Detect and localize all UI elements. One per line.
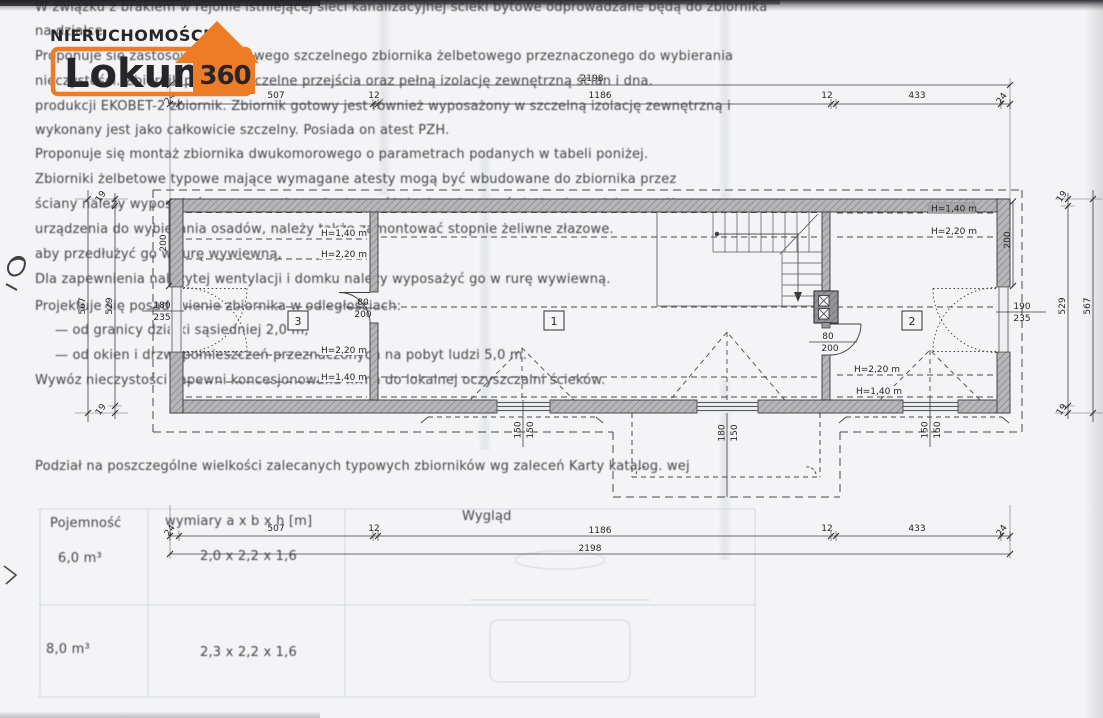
partition-room1-room2 <box>822 212 830 291</box>
chimney <box>814 291 838 328</box>
window-left <box>497 400 550 413</box>
partition-room3-room1 <box>370 212 378 292</box>
door-left-width: 180 <box>153 301 170 311</box>
ghost-line: produkcji EKOBET-2 zbiornik. Zbiornik go… <box>35 99 731 114</box>
dim-seg: 12 <box>821 524 832 534</box>
window-height: 150 <box>526 421 536 438</box>
height-label: H=2,20 m <box>321 346 367 356</box>
logo-360: 360 <box>199 61 250 91</box>
room-number-2: 2 <box>909 315 916 328</box>
door-right-width: 190 <box>1013 302 1030 312</box>
ghost-line: Podział na poszczególne wielkości zaleca… <box>35 459 690 474</box>
wall-top <box>170 199 1010 212</box>
door-int-width: 80 <box>822 332 834 342</box>
floor-plan-scan: W związku z brakiem w rejonie istniejące… <box>0 0 1103 718</box>
ghost-line: Projektuje się posadowienie zbiornika w … <box>35 299 401 314</box>
wall-left <box>170 199 183 287</box>
lokum360-logo: NIERUCHOMOŚCI Lokum 360 <box>50 21 259 97</box>
door-int-width: 80 <box>357 298 369 308</box>
door-right-height: 235 <box>1013 314 1030 324</box>
ghost-table-cell: 2,3 x 2,2 x 1,6 <box>200 645 297 660</box>
dim-pier-right: 200 <box>1003 231 1013 248</box>
ghost-line: Zbiorniki żelbetowe typowe mające wymaga… <box>35 172 676 187</box>
height-label: H=1,40 m <box>321 373 367 383</box>
wall-left <box>170 352 183 413</box>
dim-top-total: 2198 <box>581 74 604 84</box>
ghost-table-header: Wygląd <box>462 509 512 524</box>
logo-tagline: NIERUCHOMOŚCI <box>50 26 210 45</box>
ghost-line: wykonany jest jako całkowicie szczelny. … <box>35 123 449 138</box>
stair-walk-start-dot <box>715 232 719 236</box>
dim-seg: 433 <box>908 91 925 101</box>
ghost-line: Proponuje się montaż zbiornika dwukomoro… <box>35 147 648 162</box>
dim-seg: 1186 <box>589 91 612 101</box>
height-label: H=2,20 m <box>931 227 977 237</box>
window-dormer <box>697 400 758 413</box>
ghost-table-cell: 8,0 m³ <box>46 642 90 657</box>
wall-bottom <box>170 400 497 413</box>
height-label: H=2,20 m <box>854 365 900 375</box>
ghost-table-cell: 6,0 m³ <box>58 551 102 566</box>
room-number-1: 1 <box>551 315 558 328</box>
door-left-height: 235 <box>153 313 170 323</box>
dim-seg: 507 <box>267 524 284 534</box>
ghost-table-header: Pojemność <box>50 516 122 531</box>
dim-bottom-total: 2198 <box>579 544 602 554</box>
partition-room3-room1 <box>370 323 378 400</box>
door-int-height: 200 <box>821 344 838 354</box>
scan-bottom-shadow <box>0 711 320 718</box>
wall-bottom <box>550 400 697 413</box>
wall-right <box>997 352 1010 413</box>
height-label: H=1,40 m <box>856 387 902 397</box>
ghost-line: Dla zapewnienia należytej wentylacji i d… <box>35 272 611 287</box>
scan-right-shadow <box>1085 0 1103 718</box>
ghost-line: — od okien i drzwi pomieszczeń przeznacz… <box>55 348 527 363</box>
window-width: 150 <box>921 421 931 438</box>
dim-left-seg: 529 <box>105 297 115 314</box>
room-number-3: 3 <box>295 315 302 328</box>
window-height: 150 <box>933 421 943 438</box>
dim-right-seg: 529 <box>1058 297 1068 314</box>
ghost-table-header: wymiary a x b x h [m] <box>165 514 312 529</box>
dim-seg: 12 <box>368 91 379 101</box>
height-label: H=2,20 m <box>321 250 367 260</box>
partition-room1-room2 <box>822 355 830 400</box>
dim-seg: 433 <box>908 524 925 534</box>
dim-left-total: 567 <box>78 297 88 314</box>
window-width: 180 <box>718 424 728 441</box>
dim-seg: 12 <box>821 91 832 101</box>
dim-seg: 507 <box>267 91 284 101</box>
ghost-table-cell: 2,0 x 2,2 x 1,6 <box>200 549 297 564</box>
wall-bottom <box>758 400 903 413</box>
window-width: 150 <box>514 421 524 438</box>
scanned-page: W związku z brakiem w rejonie istniejące… <box>0 0 1103 718</box>
window-height: 150 <box>730 424 740 441</box>
dim-pier-left: 200 <box>159 234 169 251</box>
height-label: H=1,40 m <box>321 229 367 239</box>
window-right <box>903 400 958 413</box>
dim-seg: 1186 <box>589 526 612 536</box>
dim-seg: 12 <box>368 524 379 534</box>
height-label: H=1,40 m <box>931 205 977 215</box>
door-int-height: 200 <box>354 310 371 320</box>
